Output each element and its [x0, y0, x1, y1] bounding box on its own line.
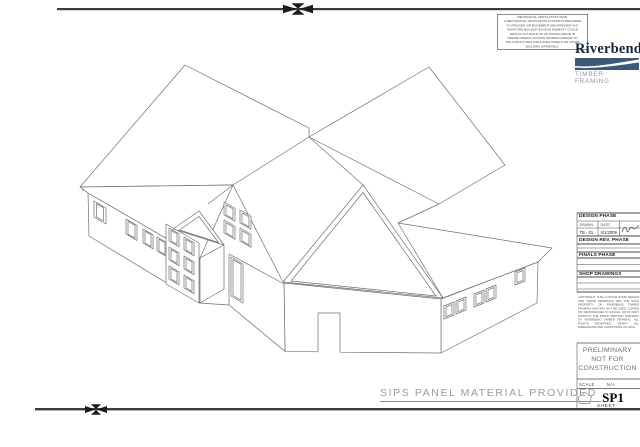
date-value: 4/1/2009 — [601, 230, 617, 235]
status-line: CONSTRUCTION — [577, 365, 638, 374]
signature-scribble — [622, 225, 639, 232]
sheet-linework — [0, 0, 640, 447]
date-label: DATE — [601, 223, 610, 227]
drawing-caption: SIPS PANEL MATERIAL PROVIDED — [380, 387, 601, 402]
drawing-sheet: MECHANICAL VENTILATION NOTE: A MECHANICA… — [0, 0, 640, 447]
sheet-label: SHEET — [597, 403, 616, 408]
status-stamp: PRELIMINARY NOT FOR CONSTRUCTION — [577, 347, 638, 374]
logo-wordmark: Riverbend — [575, 42, 639, 57]
status-line: NOT FOR — [577, 356, 638, 365]
logo-tagline: TIMBER FRAMING — [575, 71, 639, 85]
scale-value: N/A — [607, 382, 615, 387]
bottom-border-line — [35, 408, 640, 410]
phase-header-design: DESIGN PHASE — [579, 214, 616, 219]
status-line: PRELIMINARY — [577, 347, 638, 356]
logo-river-icon — [575, 58, 639, 70]
phase-header-finals: FINALS PHASE — [579, 253, 615, 258]
phase-header-design-rev: DESIGN REV. PHASE — [579, 238, 629, 243]
drawn-value: TB - 01 — [580, 230, 594, 235]
house-isometric-drawing — [80, 65, 552, 353]
drawn-label: DRAWN — [580, 223, 593, 227]
top-border-line — [57, 8, 640, 10]
copyright-fine-print: COPYRIGHT. THIS CUSTOM HOME DESIGN AND T… — [578, 296, 639, 340]
note-line: BUILDING MATERIALS. — [498, 45, 587, 49]
phase-header-shop-drawings: SHOP DRAWINGS — [579, 272, 622, 277]
riverbend-logo: Riverbend TIMBER FRAMING — [575, 42, 639, 85]
